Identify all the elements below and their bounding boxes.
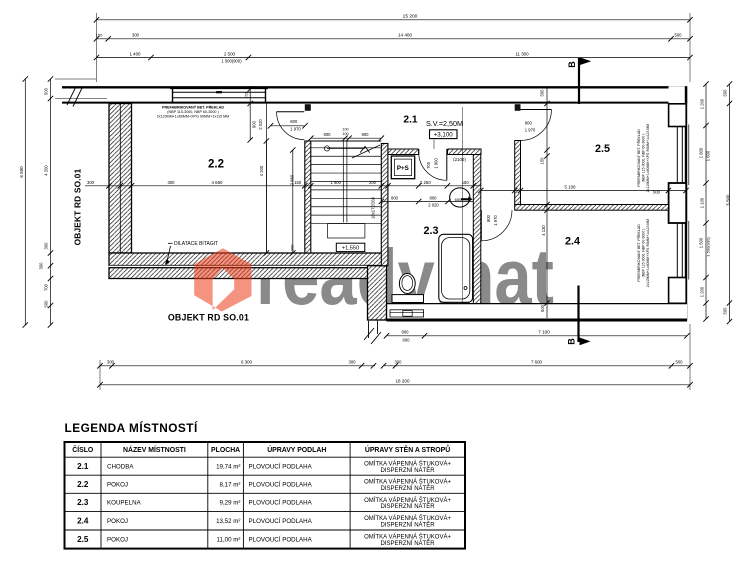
svg-text:800: 800: [525, 120, 533, 125]
svg-text:4 650: 4 650: [212, 180, 224, 185]
svg-text:19,74 m²: 19,74 m²: [216, 463, 240, 470]
svg-text:300: 300: [44, 242, 49, 250]
svg-text:300: 300: [395, 360, 403, 365]
svg-text:2x115MM+1x60MM+XPS 90MM+1x115: 2x115MM+1x60MM+XPS 90MM+1x115 MM: [646, 124, 650, 193]
svg-text:(2100): (2100): [453, 157, 466, 162]
svg-text:+1,550: +1,550: [342, 246, 359, 252]
svg-text:300: 300: [39, 262, 44, 270]
svg-text:(NBP 115-3000, NBP 60-3000 ): (NBP 115-3000, NBP 60-3000 ): [641, 134, 645, 183]
svg-text:100: 100: [342, 132, 348, 136]
svg-text:500: 500: [44, 87, 49, 95]
svg-text:ČÍSLO: ČÍSLO: [72, 445, 94, 454]
svg-text:150: 150: [96, 33, 103, 38]
svg-text:4 130: 4 130: [541, 225, 546, 236]
svg-text:18x172/260: 18x172/260: [371, 196, 376, 219]
svg-text:4 200: 4 200: [44, 165, 49, 176]
svg-text:2x115MM+1x60MM+XPG 90MM+1x115: 2x115MM+1x60MM+XPG 90MM+1x115 MM: [157, 114, 230, 118]
svg-text:500: 500: [44, 300, 49, 308]
svg-text:(NBP 115-3000, NBP 60-3000 ): (NBP 115-3000, NBP 60-3000 ): [641, 229, 645, 278]
svg-text:DISPERZNÍ NÁTĚR: DISPERZNÍ NÁTĚR: [381, 502, 436, 510]
svg-text:DISPERZNÍ NÁTĚR: DISPERZNÍ NÁTĚR: [381, 466, 436, 474]
svg-text:POKOJ: POKOJ: [107, 537, 128, 544]
svg-text:650: 650: [455, 197, 462, 202]
svg-text:800: 800: [430, 196, 438, 201]
svg-text:8,17 m²: 8,17 m²: [220, 481, 241, 488]
svg-text:800: 800: [290, 119, 298, 124]
svg-text:150: 150: [294, 180, 302, 185]
svg-text:150: 150: [244, 91, 249, 98]
svg-text:500: 500: [540, 304, 545, 312]
svg-text:2.1: 2.1: [77, 462, 89, 471]
svg-text:2 020: 2 020: [258, 119, 263, 130]
svg-text:OBJEKT RD SO.01: OBJEKT RD SO.01: [73, 168, 83, 245]
svg-text:KOUPELNA: KOUPELNA: [107, 500, 142, 507]
svg-text:900: 900: [402, 330, 410, 335]
svg-text:OMÍTKA VÁPENNÁ ŠTUKOVÁ+: OMÍTKA VÁPENNÁ ŠTUKOVÁ+: [364, 497, 451, 504]
svg-text:11,00 m²: 11,00 m²: [217, 537, 241, 544]
svg-text:OMÍTKA VÁPENNÁ ŠTUKOVÁ+: OMÍTKA VÁPENNÁ ŠTUKOVÁ+: [364, 534, 451, 541]
svg-text:1 500(900): 1 500(900): [221, 58, 242, 63]
svg-text:300: 300: [107, 360, 115, 365]
svg-text:PLOVOUCÍ PODLAHA: PLOVOUCÍ PODLAHA: [249, 463, 313, 470]
svg-text:LEGENDA MÍSTNOSTÍ: LEGENDA MÍSTNOSTÍ: [65, 421, 198, 435]
svg-text:500: 500: [540, 89, 545, 97]
svg-text:DISPERZNÍ NÁTĚR: DISPERZNÍ NÁTĚR: [381, 539, 436, 547]
svg-text:2.3: 2.3: [423, 225, 438, 237]
svg-text:800: 800: [391, 196, 399, 201]
svg-text:7 100: 7 100: [538, 330, 550, 335]
svg-text:500: 500: [723, 89, 728, 97]
svg-text:700: 700: [44, 283, 49, 291]
svg-text:2.1: 2.1: [403, 115, 417, 126]
svg-text:1 400: 1 400: [130, 51, 142, 56]
svg-text:B: B: [566, 338, 576, 345]
svg-text:1 600: 1 600: [706, 150, 711, 161]
svg-text:1 100: 1 100: [700, 197, 705, 208]
svg-text:ÚPRAVY PODLAH: ÚPRAVY PODLAH: [267, 445, 326, 454]
svg-text:2.5: 2.5: [595, 143, 610, 155]
svg-text:(NBP 115-3000, NBP 60-3000 ): (NBP 115-3000, NBP 60-3000 ): [167, 110, 218, 114]
svg-text:600: 600: [403, 338, 411, 343]
svg-text:NÁZEV MÍSTNOSTI: NÁZEV MÍSTNOSTI: [123, 445, 186, 454]
svg-text:CHODBA: CHODBA: [107, 463, 134, 470]
svg-text:300: 300: [290, 244, 295, 251]
svg-text:1 500(900): 1 500(900): [706, 237, 711, 257]
svg-text:13,52 m²: 13,52 m²: [216, 518, 240, 525]
svg-text:6 500: 6 500: [19, 166, 24, 178]
svg-text:6 300: 6 300: [241, 360, 253, 365]
svg-text:700: 700: [426, 161, 431, 169]
svg-text:PLOCHA: PLOCHA: [211, 447, 240, 454]
svg-text:2.4: 2.4: [565, 236, 580, 248]
svg-text:9,29 m²: 9,29 m²: [220, 500, 241, 507]
svg-text:PREFABRIKOVANÝ BET. PŘEKLAD: PREFABRIKOVANÝ BET. PŘEKLAD: [636, 129, 641, 187]
svg-text:2.3: 2.3: [77, 498, 89, 507]
svg-text:800: 800: [486, 214, 491, 222]
svg-text:2 250: 2 250: [420, 180, 432, 185]
svg-text:PLOVOUCÍ PODLAHA: PLOVOUCÍ PODLAHA: [249, 518, 313, 525]
svg-text:300: 300: [168, 180, 176, 185]
svg-text:DISPERZNÍ NÁTĚR: DISPERZNÍ NÁTĚR: [381, 521, 436, 529]
svg-text:OBJEKT RD SO.01: OBJEKT RD SO.01: [168, 313, 249, 323]
svg-text:500: 500: [676, 360, 684, 365]
svg-text:5 500: 5 500: [726, 194, 731, 206]
svg-text:5 100: 5 100: [565, 184, 577, 189]
svg-text:DISPERZNÍ NÁTĚR: DISPERZNÍ NÁTĚR: [381, 484, 436, 492]
svg-text:2 500: 2 500: [224, 51, 236, 56]
svg-text:2.2: 2.2: [77, 480, 89, 489]
svg-text:1 200: 1 200: [700, 286, 705, 297]
svg-text:1 500: 1 500: [699, 237, 704, 248]
svg-text:150: 150: [462, 180, 470, 185]
svg-text:PLOVOUCÍ PODLAHA: PLOVOUCÍ PODLAHA: [249, 481, 313, 488]
svg-text:PREFABRIKOVANÝ BET. PŘEKLAD: PREFABRIKOVANÝ BET. PŘEKLAD: [162, 104, 224, 109]
svg-text:B: B: [567, 61, 577, 68]
svg-text:2.4: 2.4: [77, 517, 89, 526]
svg-text:4 200: 4 200: [259, 165, 264, 176]
svg-text:1 900: 1 900: [330, 180, 341, 185]
svg-text:150: 150: [540, 157, 545, 165]
svg-text:POKOJ: POKOJ: [107, 481, 128, 488]
svg-text:DILATACE BITAGIT: DILATACE BITAGIT: [174, 241, 218, 247]
svg-text:PLOVOUCÍ PODLAHA: PLOVOUCÍ PODLAHA: [249, 537, 313, 544]
svg-text:14 400: 14 400: [398, 33, 412, 38]
svg-text:1 800: 1 800: [699, 147, 704, 158]
svg-text:OMÍTKA VÁPENNÁ ŠTUKOVÁ+: OMÍTKA VÁPENNÁ ŠTUKOVÁ+: [364, 461, 451, 468]
svg-text:11 300: 11 300: [515, 51, 529, 56]
svg-text:1 970: 1 970: [493, 215, 498, 226]
svg-text:500: 500: [675, 33, 683, 38]
svg-text:900: 900: [324, 132, 332, 137]
svg-text:P+S: P+S: [397, 165, 409, 172]
svg-text:15 200: 15 200: [403, 14, 418, 20]
svg-text:S.V.=2,50M: S.V.=2,50M: [426, 119, 463, 128]
svg-text:2 020: 2 020: [428, 203, 439, 208]
svg-text:7 600: 7 600: [531, 360, 543, 365]
svg-text:900: 900: [252, 120, 257, 128]
svg-text:900: 900: [362, 132, 370, 137]
svg-text:300: 300: [87, 180, 95, 185]
svg-text:POKOJ: POKOJ: [107, 518, 128, 525]
svg-text:OMÍTKA VÁPENNÁ ŠTUKOVÁ+: OMÍTKA VÁPENNÁ ŠTUKOVÁ+: [364, 479, 451, 486]
svg-text:1 200: 1 200: [700, 98, 705, 109]
svg-text:100: 100: [342, 128, 348, 132]
svg-text:300: 300: [132, 33, 140, 38]
svg-text:+3,100: +3,100: [434, 132, 454, 139]
svg-text:18 200: 18 200: [395, 379, 409, 384]
svg-text:300: 300: [349, 360, 357, 365]
svg-text:PLOVOUCÍ PODLAHA: PLOVOUCÍ PODLAHA: [249, 500, 313, 507]
svg-text:2.5: 2.5: [77, 535, 89, 544]
svg-text:200: 200: [369, 180, 377, 185]
svg-text:1 900: 1 900: [433, 157, 438, 168]
svg-text:1 970: 1 970: [525, 128, 536, 133]
svg-text:PREFABRIKOVANÝ BET. PŘEKLAD: PREFABRIKOVANÝ BET. PŘEKLAD: [636, 224, 641, 282]
svg-text:500: 500: [723, 307, 728, 315]
svg-text:2.2: 2.2: [208, 159, 224, 171]
svg-text:1 970: 1 970: [290, 127, 301, 132]
svg-text:2x115MM+1x60MM+XPS 90MM+1x115: 2x115MM+1x60MM+XPS 90MM+1x115 MM: [646, 219, 650, 288]
svg-text:2 860: 2 860: [290, 174, 295, 185]
svg-text:OMÍTKA VÁPENNÁ ŠTUKOVÁ+: OMÍTKA VÁPENNÁ ŠTUKOVÁ+: [364, 515, 451, 522]
